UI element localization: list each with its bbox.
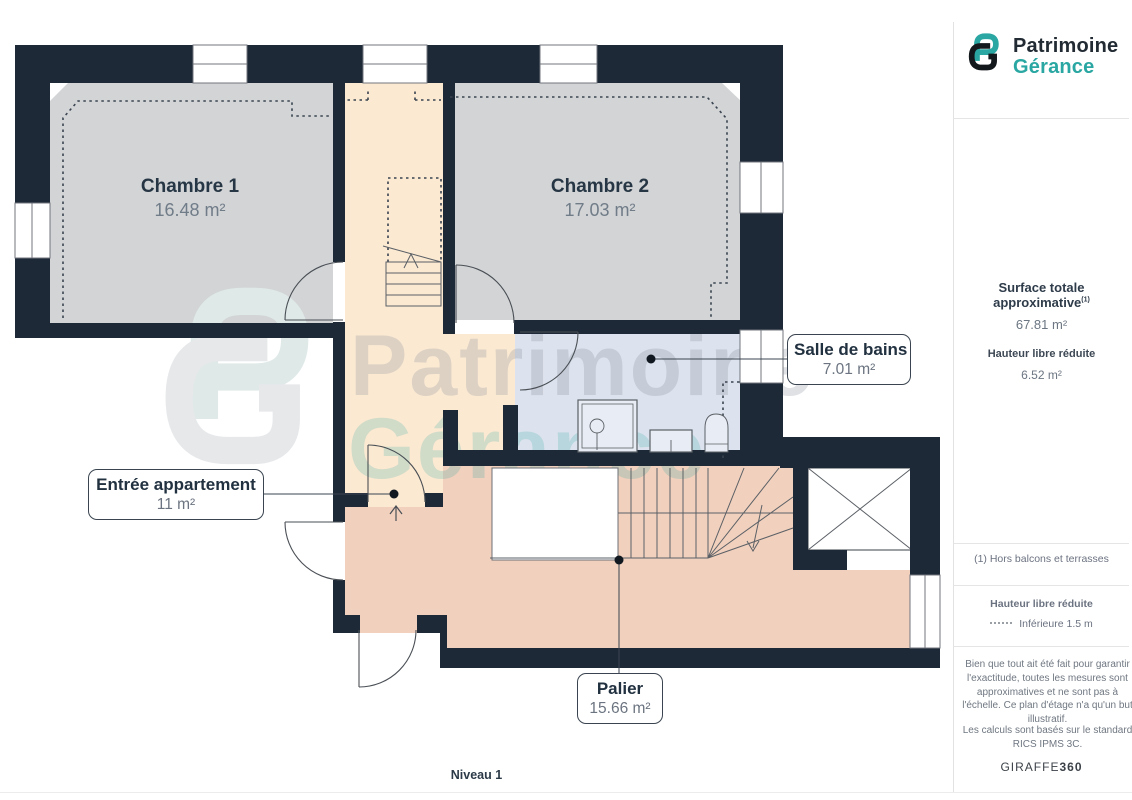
- level-label: Niveau 1: [0, 768, 953, 782]
- info-sidebar: Patrimoine Gérance Surface totale approx…: [953, 22, 1129, 792]
- brand-name-line1: Patrimoine: [1013, 36, 1118, 56]
- room-name: Entrée appartement: [95, 474, 257, 495]
- room-name: Chambre 2: [510, 175, 690, 199]
- room-label-chambre2: Chambre 2 17.03 m²: [510, 175, 690, 222]
- window-icon: [740, 330, 783, 383]
- window-icon: [740, 162, 783, 213]
- door-neighbor: [285, 522, 343, 580]
- room-area: 15.66 m²: [584, 699, 656, 718]
- dotted-line-icon: [990, 622, 1012, 624]
- window-icon: [15, 203, 50, 258]
- surface-footnote: (1) Hors balcons et terrasses: [954, 553, 1129, 565]
- standard-text: Les calculs sont basés sur le standard R…: [954, 724, 1132, 752]
- room-name: Salle de bains: [794, 339, 904, 360]
- callout-salle-de-bains: Salle de bains 7.01 m²: [787, 334, 911, 385]
- shower-icon: [578, 400, 637, 452]
- legend: Hauteur libre réduite Inférieure 1.5 m: [954, 598, 1129, 630]
- elevator-shaft: [808, 468, 912, 550]
- surface-total-value: 67.81 m²: [954, 317, 1129, 332]
- sidebar-divider: [954, 646, 1129, 647]
- surface-footnote-marker: (1): [1081, 297, 1090, 304]
- leader-dot-entrance: [390, 490, 399, 499]
- legend-title: Hauteur libre réduite: [954, 598, 1129, 610]
- room-area: 11 m²: [95, 495, 257, 514]
- brand-monogram-icon: [962, 30, 1006, 83]
- legend-item: Inférieure 1.5 m: [954, 618, 1129, 630]
- sidebar-divider: [954, 585, 1129, 586]
- window-icon: [910, 575, 940, 648]
- brand-name-line2: Gérance: [1013, 57, 1118, 77]
- leader-dot-landing: [615, 556, 624, 565]
- room-area: 17.03 m²: [510, 199, 690, 222]
- window-icon: [193, 45, 247, 83]
- reduced-height-label: Hauteur libre réduite: [954, 348, 1129, 360]
- sidebar-divider: [954, 118, 1129, 119]
- stairwell-void: [492, 468, 618, 560]
- window-icon: [363, 45, 427, 83]
- sidebar-divider: [954, 543, 1129, 544]
- giraffe360-credit: GIRAFFE360: [954, 760, 1129, 774]
- callout-entree-appartement: Entrée appartement 11 m²: [88, 469, 264, 520]
- leader-dot-bathroom: [647, 355, 656, 364]
- room-area: 7.01 m²: [794, 360, 904, 379]
- room-label-chambre1: Chambre 1 16.48 m²: [100, 175, 280, 222]
- reduced-height-value: 6.52 m²: [954, 368, 1129, 382]
- room-name: Chambre 1: [100, 175, 280, 199]
- sink-icon: [650, 430, 692, 452]
- surface-summary: Surface totale approximative(1) 67.81 m²…: [954, 280, 1129, 382]
- room-area: 16.48 m²: [100, 199, 280, 222]
- room-name: Palier: [584, 678, 656, 699]
- disclaimer-text: Bien que tout ait été fait pour garantir…: [954, 658, 1132, 727]
- floorplan-page: Patrimoine Gérance: [0, 0, 1132, 800]
- brand-logo: Patrimoine Gérance: [962, 30, 1118, 83]
- surface-total-label: Surface totale approximative(1): [954, 280, 1129, 310]
- callout-palier: Palier 15.66 m²: [577, 673, 663, 724]
- window-icon: [540, 45, 597, 83]
- toilet-icon: [705, 414, 728, 452]
- door-landing-bottom: [359, 630, 416, 687]
